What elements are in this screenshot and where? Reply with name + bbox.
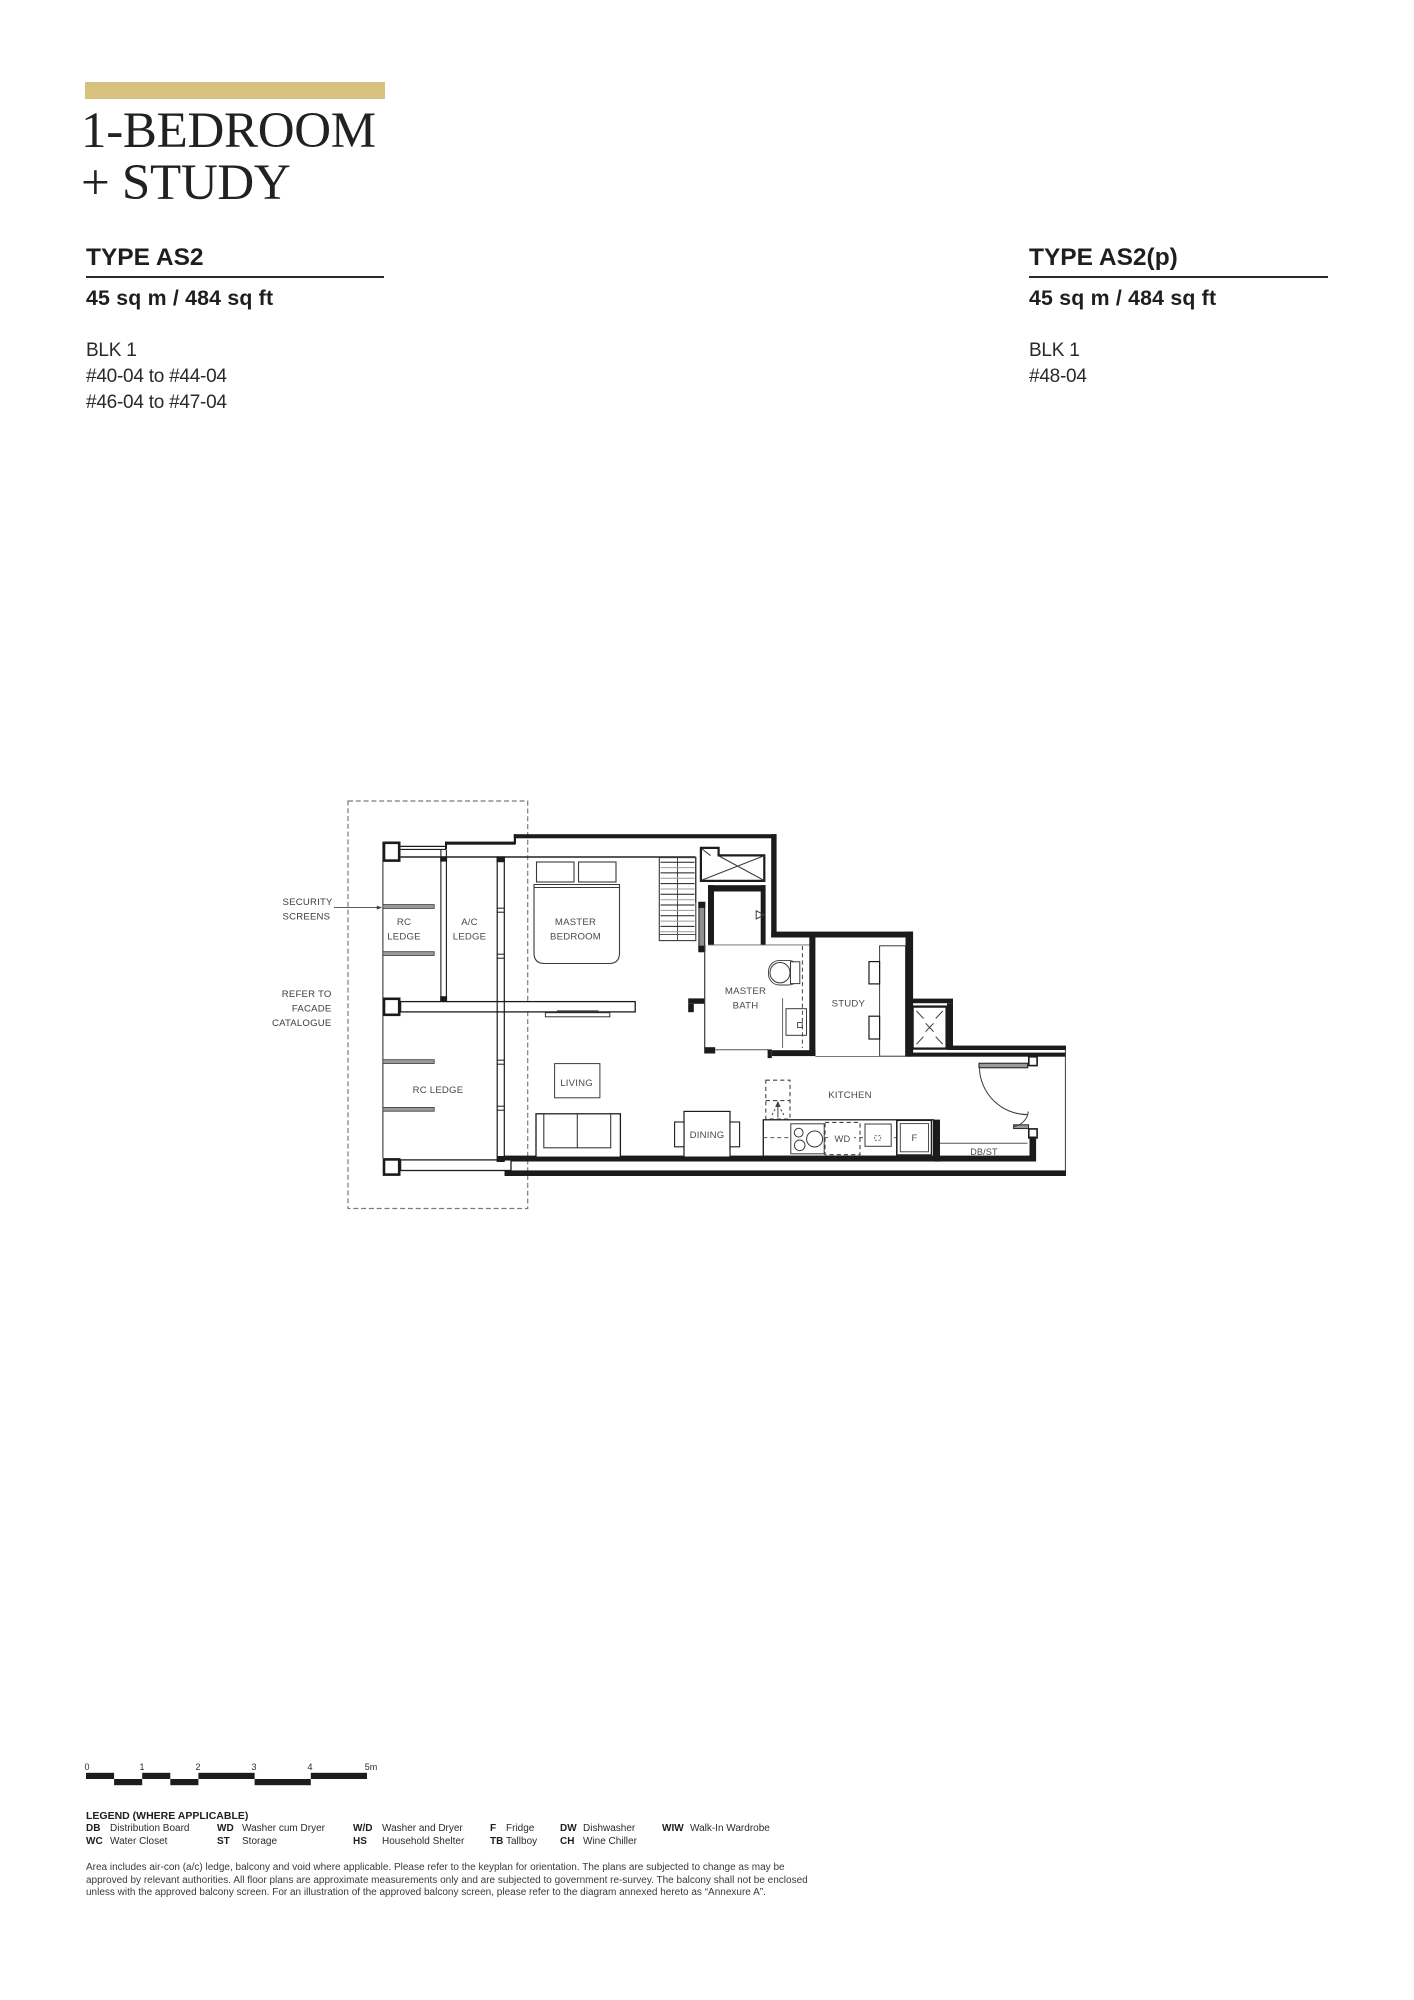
svg-text:KITCHEN: KITCHEN — [828, 1090, 872, 1101]
svg-text:1: 1 — [139, 1762, 144, 1772]
svg-text:0: 0 — [84, 1762, 89, 1772]
svg-text:STUDY: STUDY — [832, 999, 866, 1010]
svg-text:BEDROOM: BEDROOM — [550, 932, 601, 943]
svg-text:REFER TO: REFER TO — [282, 989, 332, 1000]
svg-text:RC: RC — [397, 917, 411, 928]
svg-text:LIVING: LIVING — [560, 1078, 593, 1089]
svg-text:MASTER: MASTER — [725, 986, 766, 997]
svg-text:4: 4 — [307, 1762, 312, 1772]
svg-text:DINING: DINING — [690, 1130, 725, 1141]
svg-text:BATH: BATH — [733, 1001, 759, 1012]
svg-text:2: 2 — [195, 1762, 200, 1772]
svg-text:A/C: A/C — [461, 917, 478, 928]
svg-text:LEDGE: LEDGE — [387, 932, 421, 943]
svg-text:WD: WD — [835, 1134, 851, 1144]
svg-text:3: 3 — [251, 1762, 256, 1772]
svg-text:F: F — [912, 1133, 918, 1143]
svg-text:RC LEDGE: RC LEDGE — [413, 1085, 464, 1096]
svg-text:FACADE: FACADE — [292, 1003, 332, 1014]
svg-text:DB/ST: DB/ST — [970, 1147, 998, 1157]
svg-text:5m: 5m — [365, 1762, 378, 1772]
svg-text:MASTER: MASTER — [555, 917, 596, 928]
svg-text:SCREENS: SCREENS — [283, 912, 331, 923]
svg-text:LEDGE: LEDGE — [453, 932, 487, 943]
svg-text:SECURITY: SECURITY — [283, 897, 334, 908]
svg-text:CATALOGUE: CATALOGUE — [272, 1018, 332, 1029]
